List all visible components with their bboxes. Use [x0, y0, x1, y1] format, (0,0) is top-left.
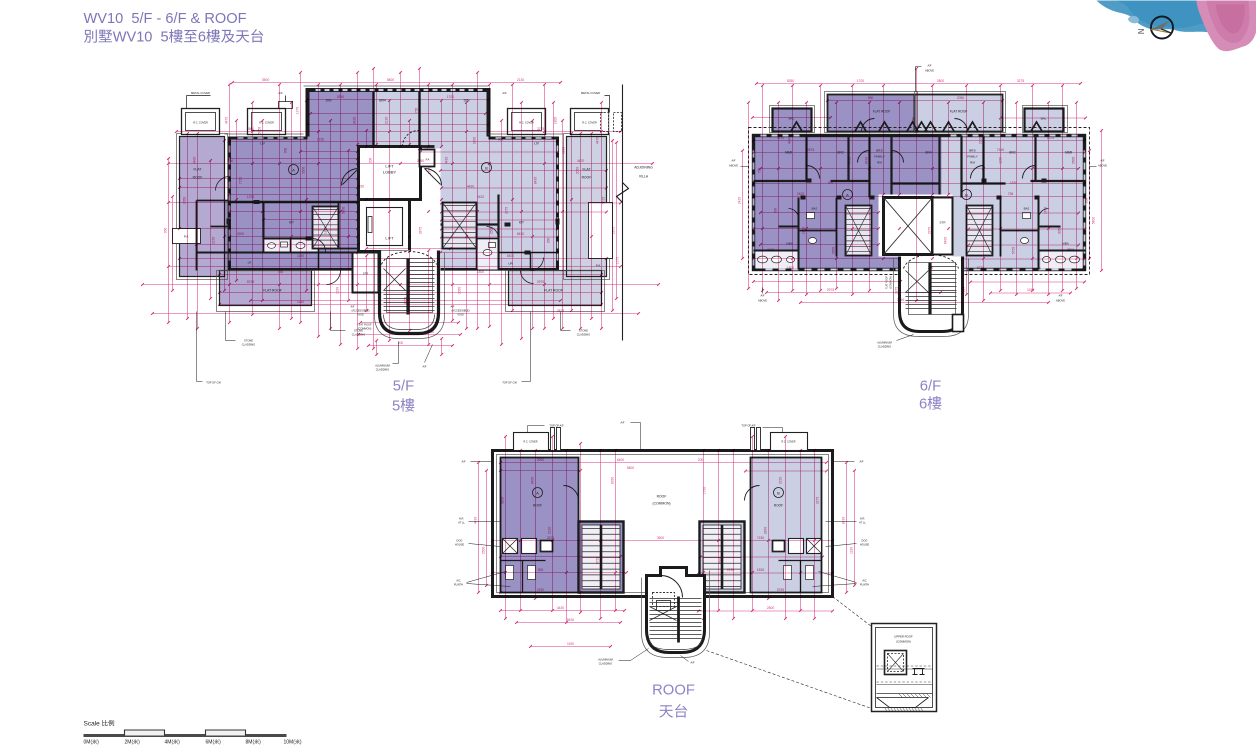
- svg-text:A/F: A/F: [927, 64, 931, 68]
- svg-text:755: 755: [415, 108, 419, 114]
- svg-text:BAL: BAL: [1041, 117, 1047, 121]
- svg-text:): ): [97, 740, 99, 746]
- svg-text:2800: 2800: [937, 79, 945, 83]
- svg-text:BA2: BA2: [812, 207, 818, 211]
- svg-text:5800: 5800: [342, 207, 346, 215]
- svg-text:ABOVE: ABOVE: [1056, 299, 1065, 303]
- svg-text:5800: 5800: [387, 78, 395, 82]
- svg-text:METAL COVER: METAL COVER: [191, 91, 210, 95]
- svg-text:BAL: BAL: [789, 117, 795, 121]
- svg-text:Scale: Scale: [84, 721, 102, 728]
- svg-text:AT LL: AT LL: [458, 521, 465, 525]
- svg-text:ABOVE: ABOVE: [729, 164, 738, 168]
- svg-text:TOP OF A/F: TOP OF A/F: [741, 424, 756, 428]
- svg-text:5725: 5725: [977, 266, 985, 270]
- svg-text:FLAT ROOF: FLAT ROOF: [263, 289, 282, 293]
- svg-text:900: 900: [828, 181, 834, 185]
- svg-text:): ): [300, 740, 302, 746]
- svg-text:1190: 1190: [850, 547, 854, 554]
- svg-text:2M(: 2M(: [125, 740, 134, 746]
- svg-text:B: B: [485, 166, 488, 171]
- svg-text:8350: 8350: [404, 297, 408, 305]
- svg-text:1800: 1800: [787, 266, 795, 270]
- svg-text:A/F: A/F: [620, 421, 624, 425]
- svg-text:CLADDING: CLADDING: [242, 343, 255, 347]
- svg-text:ALUMINIUM: ALUMINIUM: [598, 658, 613, 662]
- svg-text:1375: 1375: [296, 107, 300, 115]
- svg-text:(ACCESSIBLE): (ACCESSIBLE): [451, 309, 469, 313]
- svg-text:ROOF: ROOF: [652, 683, 695, 699]
- svg-text:2800: 2800: [473, 137, 477, 145]
- svg-text:DIN: DIN: [326, 99, 332, 103]
- svg-text:R.C. COVER: R.C. COVER: [582, 122, 597, 125]
- svg-text:200: 200: [398, 341, 404, 345]
- svg-text:A/F: A/F: [461, 460, 465, 464]
- svg-text:2150: 2150: [779, 477, 783, 485]
- svg-text:FLAT ROOF: FLAT ROOF: [950, 110, 968, 114]
- svg-text:1150: 1150: [336, 287, 340, 294]
- svg-text:900: 900: [284, 148, 288, 154]
- svg-text:7150: 7150: [757, 536, 765, 540]
- svg-text:2420: 2420: [353, 117, 357, 125]
- svg-text:1700: 1700: [857, 79, 865, 83]
- svg-text:1800: 1800: [802, 227, 806, 235]
- svg-text:BR3/: BR3/: [876, 149, 883, 153]
- svg-text:1800: 1800: [554, 117, 558, 125]
- svg-text:CLADDING: CLADDING: [577, 333, 590, 337]
- svg-text:A/F: A/F: [278, 91, 283, 95]
- svg-text:A/F: A/F: [422, 365, 426, 369]
- svg-text:ABOVE: ABOVE: [1098, 164, 1107, 168]
- svg-text:N: N: [1137, 28, 1146, 34]
- svg-text:1190: 1190: [297, 254, 304, 258]
- svg-text:1150: 1150: [1027, 288, 1034, 292]
- svg-text:A: A: [292, 168, 295, 173]
- svg-text:2420: 2420: [797, 192, 805, 196]
- svg-text:8430: 8430: [842, 517, 846, 525]
- svg-text:2975: 2975: [827, 288, 835, 292]
- svg-text:STR: STR: [363, 272, 368, 276]
- svg-text:A/F: A/F: [690, 661, 694, 665]
- svg-text:8430: 8430: [517, 232, 525, 236]
- svg-text:1375: 1375: [616, 257, 620, 265]
- svg-text:HOUSE: HOUSE: [455, 543, 464, 547]
- svg-text:5: 5: [392, 399, 400, 415]
- svg-text:METAL COVER: METAL COVER: [581, 91, 600, 95]
- svg-text:2050: 2050: [957, 96, 965, 100]
- svg-text:7150: 7150: [239, 177, 243, 185]
- svg-text:3050: 3050: [1058, 227, 1062, 235]
- svg-text:3050: 3050: [537, 458, 545, 462]
- svg-text:2800: 2800: [764, 527, 768, 535]
- svg-text:H.R.: H.R.: [459, 517, 464, 521]
- svg-text:2150: 2150: [212, 237, 216, 245]
- svg-text:1800: 1800: [477, 270, 485, 274]
- svg-text:950: 950: [228, 159, 234, 163]
- svg-text:4430: 4430: [474, 517, 478, 525]
- svg-text:2875: 2875: [895, 287, 899, 295]
- svg-text:STR: STR: [940, 221, 947, 225]
- svg-text:5755: 5755: [596, 557, 600, 565]
- svg-text:5725: 5725: [848, 157, 852, 165]
- svg-text:UPPER ROOF: UPPER ROOF: [894, 635, 913, 639]
- svg-text:FLAT ROOF: FLAT ROOF: [886, 275, 889, 289]
- svg-text:8430: 8430: [567, 618, 575, 622]
- svg-text:B: B: [777, 491, 780, 496]
- svg-text:STONE: STONE: [244, 339, 253, 343]
- svg-text:AT LL: AT LL: [859, 521, 866, 525]
- svg-text:4430: 4430: [557, 606, 565, 610]
- svg-text:BR4: BR4: [379, 99, 386, 103]
- svg-text:P.A.: P.A.: [596, 264, 601, 268]
- svg-text:200: 200: [928, 266, 934, 270]
- svg-text:VILLA: VILLA: [639, 175, 649, 179]
- svg-text:TOP OF CW: TOP OF CW: [206, 381, 221, 385]
- svg-text:2975: 2975: [612, 227, 616, 235]
- svg-text:755: 755: [1008, 192, 1014, 196]
- svg-text:ABOVE: ABOVE: [925, 69, 934, 73]
- svg-text:3500: 3500: [1072, 157, 1076, 165]
- svg-text:A/F: A/F: [760, 294, 764, 298]
- svg-text:3275: 3275: [816, 497, 820, 505]
- svg-text:2500: 2500: [1067, 248, 1075, 252]
- svg-text:2130: 2130: [548, 527, 552, 535]
- svg-text:0M(: 0M(: [84, 740, 93, 746]
- svg-text:PLINTH: PLINTH: [454, 583, 463, 587]
- svg-text:HOUSE: HOUSE: [860, 543, 869, 547]
- svg-text:3050: 3050: [427, 330, 435, 334]
- svg-text:): ): [259, 740, 261, 746]
- svg-text:5755: 5755: [1012, 247, 1016, 255]
- svg-text:BR3/: BR3/: [969, 149, 976, 153]
- svg-text:(COMMON): (COMMON): [896, 640, 911, 644]
- svg-text:1700: 1700: [447, 95, 455, 99]
- svg-text:950: 950: [868, 96, 874, 100]
- svg-text:8350: 8350: [611, 477, 615, 485]
- svg-text:1700: 1700: [428, 167, 432, 175]
- svg-text:TOP OF CW: TOP OF CW: [502, 381, 517, 385]
- svg-text:4430: 4430: [788, 137, 792, 145]
- svg-text:200: 200: [369, 158, 373, 164]
- svg-text:900: 900: [498, 138, 504, 142]
- svg-text:2500: 2500: [490, 227, 494, 235]
- svg-text:2500: 2500: [237, 232, 245, 236]
- svg-text:5/F: 5/F: [393, 379, 414, 395]
- svg-text:P.A.: P.A.: [184, 235, 189, 239]
- svg-text:): ): [138, 740, 140, 746]
- svg-text:FAMILY: FAMILY: [874, 155, 884, 159]
- svg-text:TOP OF A/F: TOP OF A/F: [549, 424, 564, 428]
- svg-text:ROOF: ROOF: [657, 495, 667, 499]
- svg-text:6: 6: [198, 30, 206, 46]
- svg-text:8430: 8430: [534, 177, 538, 185]
- svg-text:RM: RM: [877, 161, 882, 165]
- svg-text:1375: 1375: [1047, 136, 1055, 140]
- svg-text:5800: 5800: [501, 497, 505, 505]
- svg-text:2875: 2875: [807, 148, 815, 152]
- svg-text:5725: 5725: [247, 280, 255, 284]
- svg-text:2130: 2130: [727, 568, 735, 572]
- svg-text:R.C. COVER: R.C. COVER: [782, 441, 796, 444]
- svg-text:4470: 4470: [577, 159, 585, 163]
- svg-text:2420: 2420: [738, 197, 742, 205]
- svg-text:3500: 3500: [719, 557, 723, 565]
- svg-text:2875: 2875: [557, 309, 565, 313]
- svg-text:8350: 8350: [787, 79, 795, 83]
- svg-text:3050: 3050: [897, 298, 905, 302]
- svg-text:4470: 4470: [225, 117, 229, 125]
- svg-text:ROOF: ROOF: [582, 176, 592, 180]
- svg-text:A/F: A/F: [502, 91, 507, 95]
- svg-text:A/F: A/F: [350, 305, 354, 309]
- svg-text:1150: 1150: [999, 157, 1003, 164]
- svg-text:6400: 6400: [617, 458, 625, 462]
- svg-text:H.R.: H.R.: [860, 517, 865, 521]
- svg-text:200: 200: [1085, 198, 1089, 204]
- svg-text:1830: 1830: [1010, 181, 1018, 185]
- svg-text:2130: 2130: [385, 117, 389, 125]
- svg-text:(COMMON): (COMMON): [652, 502, 670, 506]
- svg-text:3050: 3050: [458, 287, 462, 295]
- svg-text:DOG: DOG: [862, 539, 868, 543]
- svg-text:1830: 1830: [1044, 207, 1048, 215]
- svg-text:1190: 1190: [567, 642, 574, 646]
- svg-text:6400: 6400: [507, 254, 515, 258]
- svg-text:2975: 2975: [537, 280, 545, 284]
- svg-text:): ): [219, 740, 221, 746]
- svg-text:3500: 3500: [657, 536, 665, 540]
- svg-text:6: 6: [919, 397, 927, 413]
- svg-text:6400: 6400: [944, 237, 948, 245]
- svg-text:CLADDING: CLADDING: [599, 662, 612, 666]
- svg-text:10M(: 10M(: [284, 740, 296, 746]
- svg-text:5755: 5755: [777, 588, 785, 592]
- svg-text:(COMMON): (COMMON): [890, 276, 893, 289]
- svg-text:BA2: BA2: [1024, 207, 1030, 211]
- svg-text:ALUMINIUM: ALUMINIUM: [375, 364, 390, 368]
- svg-text:ROOF: ROOF: [774, 504, 783, 508]
- svg-text:6/F: 6/F: [920, 379, 941, 395]
- svg-text:A: A: [536, 491, 539, 496]
- svg-text:WV10 5/F - 6/F & ROOF: WV10 5/F - 6/F & ROOF: [84, 11, 247, 27]
- svg-text:CLADDING: CLADDING: [376, 368, 389, 372]
- svg-text:4430: 4430: [467, 185, 475, 189]
- svg-text:4430: 4430: [767, 248, 775, 252]
- svg-text:2050: 2050: [576, 167, 580, 175]
- svg-text:6400: 6400: [531, 477, 535, 485]
- svg-text:7150: 7150: [317, 138, 325, 142]
- svg-text:3275: 3275: [505, 207, 509, 215]
- svg-text:900: 900: [774, 208, 778, 214]
- svg-text:A/F: A/F: [1058, 294, 1062, 298]
- svg-text:950: 950: [164, 228, 168, 234]
- svg-text:5755: 5755: [258, 127, 262, 135]
- svg-text:2500: 2500: [482, 547, 486, 555]
- svg-text:950: 950: [547, 238, 551, 244]
- svg-text:7150: 7150: [997, 148, 1005, 152]
- svg-text:3275: 3275: [537, 127, 545, 131]
- svg-text:FLAT: FLAT: [582, 168, 590, 172]
- svg-text:2975: 2975: [928, 227, 932, 235]
- svg-text:4M(: 4M(: [165, 740, 174, 746]
- svg-text:4470: 4470: [596, 137, 600, 145]
- svg-text:CLADDING: CLADDING: [878, 345, 891, 349]
- svg-text:): ): [178, 740, 180, 746]
- svg-text:A/F: A/F: [731, 159, 735, 163]
- svg-text:PLINTH: PLINTH: [860, 583, 869, 587]
- svg-text:755: 755: [278, 270, 284, 274]
- svg-text:6400: 6400: [193, 157, 197, 165]
- svg-text:1150: 1150: [297, 300, 304, 304]
- svg-text:4430: 4430: [445, 157, 449, 165]
- svg-text:6M(: 6M(: [206, 740, 215, 746]
- svg-text:1190: 1190: [562, 147, 566, 154]
- svg-text:755: 755: [758, 168, 762, 174]
- svg-text:7150: 7150: [962, 287, 966, 295]
- svg-text:ALUMINIUM: ALUMINIUM: [877, 341, 892, 345]
- svg-text:ADJOINING: ADJOINING: [634, 166, 653, 170]
- svg-text:MBA: MBA: [786, 242, 793, 246]
- svg-text:A/F: A/F: [1100, 159, 1104, 163]
- svg-text:2150: 2150: [979, 137, 983, 145]
- svg-text:R.C. COVER: R.C. COVER: [524, 441, 538, 444]
- svg-text:DOG: DOG: [457, 539, 463, 543]
- svg-text:3500: 3500: [302, 167, 306, 175]
- svg-text:(COMMON): (COMMON): [358, 327, 372, 331]
- svg-text:4470: 4470: [777, 136, 785, 140]
- svg-text:1830: 1830: [757, 568, 765, 572]
- svg-text:900: 900: [538, 568, 544, 572]
- svg-text:2130: 2130: [517, 78, 525, 82]
- svg-text:A/C: A/C: [456, 579, 460, 583]
- svg-text:VOID: VOID: [357, 313, 363, 317]
- svg-text:FLAT ROOF: FLAT ROOF: [873, 110, 891, 114]
- svg-text:200: 200: [698, 458, 704, 462]
- svg-text:2500: 2500: [832, 247, 836, 255]
- svg-text:1190: 1190: [912, 117, 916, 124]
- svg-text:2875: 2875: [419, 227, 423, 235]
- svg-text:8430: 8430: [865, 157, 869, 165]
- svg-text:1830: 1830: [357, 185, 365, 189]
- svg-text:1375: 1375: [247, 195, 255, 199]
- svg-text:ROOF: ROOF: [533, 504, 542, 508]
- svg-text:1700: 1700: [703, 487, 707, 495]
- svg-text:2050: 2050: [183, 197, 187, 205]
- svg-text:WV10 5: WV10 5: [113, 30, 169, 46]
- svg-text:RM: RM: [970, 161, 975, 165]
- svg-text:3500: 3500: [262, 78, 270, 82]
- svg-text:2420: 2420: [477, 195, 485, 199]
- svg-text:2800: 2800: [247, 127, 255, 131]
- svg-text:FAMILY: FAMILY: [967, 155, 977, 159]
- svg-text:2150: 2150: [537, 588, 545, 592]
- svg-text:ABOVE: ABOVE: [758, 299, 767, 303]
- svg-text:3275: 3275: [1017, 79, 1025, 83]
- svg-text:2050: 2050: [417, 159, 425, 163]
- svg-text:8M(: 8M(: [246, 740, 255, 746]
- svg-text:A/F: A/F: [859, 460, 863, 464]
- svg-text:5800: 5800: [1092, 217, 1096, 225]
- svg-text:P.A: P.A: [426, 158, 430, 162]
- svg-text:VOID: VOID: [457, 313, 463, 317]
- svg-text:5725: 5725: [602, 197, 606, 205]
- svg-text:2500: 2500: [767, 606, 775, 610]
- svg-text:R.C. COVER: R.C. COVER: [193, 122, 208, 125]
- svg-text:A/C: A/C: [862, 579, 866, 583]
- svg-text:8350: 8350: [337, 95, 345, 99]
- svg-text:2875: 2875: [547, 536, 555, 540]
- svg-text:1830: 1830: [324, 227, 328, 235]
- svg-text:5800: 5800: [627, 466, 635, 470]
